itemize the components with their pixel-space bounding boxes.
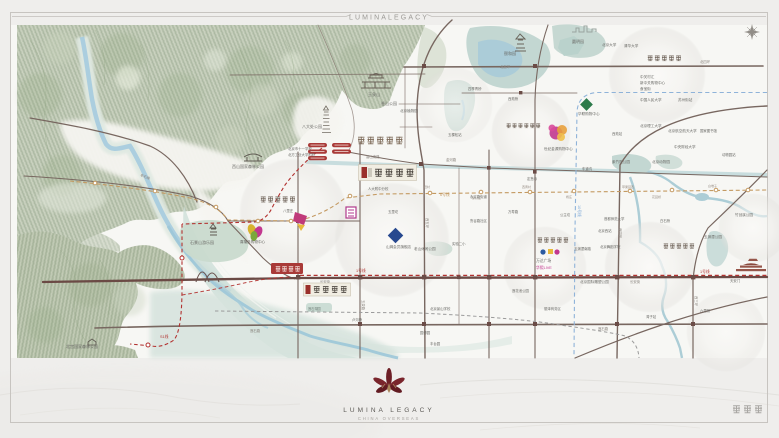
svg-text:北京市十一学校: 北京市十一学校 (288, 146, 312, 151)
svg-text:北京理工大学: 北京理工大学 (640, 123, 662, 128)
svg-text:莲石路: 莲石路 (598, 326, 609, 331)
svg-text:西黄村: 西黄村 (522, 184, 531, 189)
svg-text:北京西站: 北京西站 (598, 228, 612, 233)
svg-text:清华大学: 清华大学 (624, 43, 639, 48)
svg-text:北方工业大学附校: 北方工业大学附校 (288, 152, 316, 157)
svg-text:五里坨: 五里坨 (388, 209, 399, 214)
svg-text:万达广场: 万达广场 (536, 258, 551, 263)
svg-text:公主坟: 公主坟 (560, 212, 571, 217)
svg-text:西三环: 西三环 (694, 296, 698, 307)
svg-text:竹创溪公园: 竹创溪公园 (735, 212, 753, 217)
svg-text:金河路: 金河路 (446, 157, 457, 162)
svg-text:世纪金源购物中心: 世纪金源购物中心 (544, 146, 573, 151)
svg-text:五棵松站: 五棵松站 (448, 132, 462, 137)
svg-text:华联购物中心: 华联购物中心 (578, 111, 600, 116)
svg-text:玉泉山: 玉泉山 (368, 91, 380, 97)
svg-text:苏州街站: 苏州街站 (678, 97, 693, 102)
svg-text:北京舞蹈学院: 北京舞蹈学院 (600, 244, 621, 249)
svg-text:山姆会员旗舰店: 山姆会员旗舰店 (386, 244, 412, 249)
svg-text:LUMINA LEGACY: LUMINA LEGACY (343, 407, 434, 414)
svg-text:北京国际雕塑公园: 北京国际雕塑公园 (580, 279, 609, 284)
svg-text:北京大学: 北京大学 (602, 42, 617, 47)
svg-text:杨庄: 杨庄 (566, 194, 572, 199)
svg-text:香山公园: 香山公园 (381, 100, 397, 106)
svg-text:西山国家森林公园: 西山国家森林公园 (232, 163, 264, 169)
svg-text:新中关购物中心: 新中关购物中心 (640, 80, 666, 85)
svg-text:四季青桥: 四季青桥 (468, 86, 482, 91)
svg-text:西四环: 西四环 (618, 228, 622, 239)
svg-text:北京景山学校: 北京景山学校 (430, 306, 451, 311)
svg-text:玉渊潭公园: 玉渊潭公园 (704, 234, 722, 239)
svg-text:八大处公园: 八大处公园 (302, 123, 322, 129)
svg-text:北京航空航天大学: 北京航空航天大学 (668, 128, 697, 133)
svg-text:白石桥: 白石桥 (660, 218, 671, 223)
svg-text:北京动物园: 北京动物园 (652, 159, 670, 164)
svg-text:万寿路: 万寿路 (508, 209, 519, 214)
svg-text:园博园: 园博园 (420, 330, 431, 335)
svg-text:国家图书馆: 国家图书馆 (700, 128, 718, 133)
svg-text:北宫国家森林公园: 北宫国家森林公园 (66, 343, 98, 349)
svg-text:CHINA OVERSEAS: CHINA OVERSEAS (358, 416, 420, 421)
svg-text:颐和园: 颐和园 (504, 50, 516, 56)
svg-text:莲花池公园: 莲花池公园 (512, 288, 530, 293)
svg-text:中关村汇: 中关村汇 (640, 74, 655, 79)
svg-text:湾子站: 湾子站 (646, 314, 657, 319)
svg-text:中央财经大学: 中央财经大学 (674, 144, 696, 149)
svg-text:中国人民大学: 中国人民大学 (640, 97, 662, 102)
svg-text:田村: 田村 (424, 184, 430, 189)
svg-text:莲石湖园: 莲石湖园 (308, 306, 321, 311)
svg-text:丰台园: 丰台园 (430, 341, 441, 346)
svg-text:华熙LIVE: 华熙LIVE (536, 265, 552, 270)
svg-text:玉泉路: 玉泉路 (361, 300, 366, 311)
svg-text:西苑桥: 西苑桥 (508, 96, 519, 101)
svg-text:1号线: 1号线 (700, 269, 710, 274)
svg-text:S1线: S1线 (160, 334, 169, 339)
svg-text:动物园站: 动物园站 (722, 152, 736, 157)
svg-text:紫竹院公园: 紫竹院公园 (612, 159, 630, 164)
svg-text:石景山游乐园: 石景山游乐园 (190, 239, 214, 245)
svg-text:香山南路: 香山南路 (366, 154, 380, 159)
svg-text:实验二小: 实验二小 (452, 241, 466, 246)
svg-text:丽泽商务区: 丽泽商务区 (544, 306, 562, 311)
svg-text:6号线: 6号线 (440, 192, 450, 197)
svg-text:苹果园西: 苹果园西 (622, 184, 634, 189)
svg-text:北五环: 北五环 (500, 64, 511, 69)
svg-text:天安门: 天安门 (730, 278, 741, 283)
svg-text:定慧寺: 定慧寺 (527, 176, 538, 181)
svg-text:鲁谷路社区: 鲁谷路社区 (470, 218, 488, 223)
svg-text:北京植物园: 北京植物园 (400, 108, 418, 113)
svg-text:永定路街道: 永定路街道 (470, 194, 488, 199)
svg-text:莲石路: 莲石路 (250, 328, 261, 333)
svg-text:卢沟桥: 卢沟桥 (352, 317, 363, 322)
svg-text:圆明园: 圆明园 (572, 38, 584, 44)
svg-text:北四环: 北四环 (700, 59, 711, 64)
svg-text:八里庄: 八里庄 (283, 208, 294, 213)
svg-text:花园桥: 花园桥 (652, 194, 661, 199)
svg-text:老山休闲公园: 老山休闲公园 (414, 246, 436, 251)
svg-text:人大附中分校: 人大附中分校 (368, 186, 389, 191)
svg-text:LUMINALEGACY: LUMINALEGACY (349, 14, 429, 21)
svg-text:六里桥: 六里桥 (700, 308, 711, 313)
svg-text:车道沟: 车道沟 (582, 166, 593, 171)
svg-text:西五环: 西五环 (425, 218, 429, 229)
svg-text:白堆子: 白堆子 (708, 183, 717, 188)
svg-text:长安街: 长安街 (630, 279, 641, 284)
svg-text:首都师范大学: 首都师范大学 (604, 216, 625, 221)
svg-text:西苑站: 西苑站 (612, 131, 623, 136)
svg-text:10号线: 10号线 (577, 205, 582, 217)
svg-text:喜隆多购物中心: 喜隆多购物中心 (240, 239, 266, 244)
svg-text:食宝街: 食宝街 (640, 86, 651, 91)
svg-text:1号线: 1号线 (356, 268, 366, 273)
svg-text:玉渊潭南路: 玉渊潭南路 (574, 246, 592, 251)
